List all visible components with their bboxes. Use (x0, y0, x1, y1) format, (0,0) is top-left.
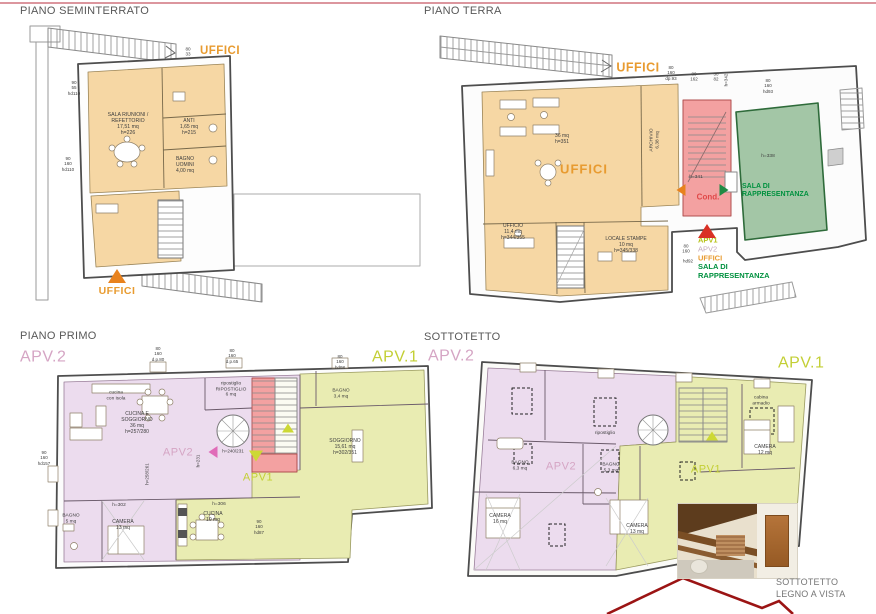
label-uffici-entrance-seminterrato: UFFICI (99, 285, 136, 297)
label-h258: h=258/261 (144, 463, 149, 484)
label-bagno34: BAGNO 3,4 mq (332, 388, 349, 399)
dim-terra-7: hd92 (683, 258, 693, 263)
label-h240: h=240/231 (222, 448, 243, 453)
label-soggiorno: SOGGIORNO 15,61 mq h=302/351 (329, 439, 360, 457)
dim-terra-5: 80 160 hd93 (763, 78, 773, 94)
label-uffici-top-terra: UFFICI (616, 61, 659, 76)
label-apv1-primo: APV.1 (372, 349, 418, 368)
photo-caption: SOTTOTETTO LEGNO A VISTA (776, 576, 845, 600)
dim-sem-2: 90 160 hd110 (62, 156, 74, 172)
label-h231: h=231 (195, 455, 200, 468)
label-camera16: CAMERA 16 mq (489, 514, 510, 526)
dim-primo-5: 90 160 hd87 (254, 519, 264, 535)
label-bagno5: BAGNO 5 mq (62, 513, 79, 524)
label-apv2-primo: APV.2 (20, 349, 66, 368)
label-sala-rappresentanza-plan: SALA DI RAPPRESENTANZA (742, 183, 809, 200)
label-cond: Cond. (697, 192, 720, 201)
label-cucina-soggiorno: CUCINA E SOGGIORNO 36 mq h=257/280 (121, 412, 152, 436)
label-apv2-sottotetto: APV.2 (428, 348, 474, 367)
dim-terra-1: 80 160 dp.93 (665, 65, 676, 81)
arrow-stair-sotto (706, 432, 718, 441)
label-apv1-watermark-sotto: APV1 (691, 464, 721, 477)
label-bagno-uomini: BAGNO UOMINI 4,00 mq (176, 157, 194, 175)
label-archivio: ARCHIVIO 6,38 mq (649, 128, 660, 151)
label-camera13-primo: CAMERA 13 mq (112, 520, 133, 532)
label-ripostiglio-primo: ripostiglio RIPOSTIGLIO 6 mq (216, 382, 247, 399)
label-h302: h=302 (112, 503, 125, 509)
floorplan-page: PIANO SEMINTERRATO PIANO TERRA PIANO PRI… (0, 0, 876, 614)
dim-terra-2: 80 162 (690, 72, 698, 83)
label-uffici-top-seminterrato: UFFICI (200, 45, 240, 59)
label-bagno53: BAGNO 5,3 mq (602, 462, 619, 473)
label-cucina-isola: cucina con isola (107, 390, 126, 401)
arrow-apv2-primo (209, 446, 218, 458)
arrow-entrance-seminterrato (108, 269, 126, 283)
label-h338: h=338 (761, 154, 774, 160)
label-apv2-watermark-sotto: APV2 (546, 461, 576, 474)
photo-brick-wall (716, 535, 745, 556)
arrow-sala-right (720, 184, 729, 196)
arrow-stair-primo (282, 424, 294, 433)
photo-furniture (678, 560, 754, 578)
plan-seminterrato-graphics (30, 26, 420, 302)
label-apv2-watermark-primo: APV2 (163, 447, 193, 460)
label-bagno63: BAGNO 6,3 mq (511, 460, 528, 471)
roof-sketch-line (607, 578, 793, 614)
photo-door (765, 515, 788, 567)
label-apv1-watermark-primo: APV1 (243, 472, 273, 485)
dim-primo-1: 80 160 d.p.80 (152, 346, 165, 362)
legend-sala-rappresentanza: SALA DI RAPPRESENTANZA (698, 263, 770, 281)
label-h341: h=341 (689, 175, 702, 181)
label-camera13-sotto: CAMERA 13 mq (626, 524, 647, 536)
label-open-space: 36 mq h=351 (555, 134, 569, 146)
dim-terra-3: 30 82 (713, 72, 718, 83)
label-cucina10: CUCINA 10 mq (203, 512, 222, 524)
label-cabina-armadio: cabina armadio (752, 395, 769, 406)
dim-terra-6: 80 160 (682, 244, 690, 255)
label-ripostiglio-sotto: ripostiglio (595, 431, 615, 437)
label-apv1-sottotetto: APV.1 (778, 355, 824, 374)
arrow-apv1-primo (249, 451, 263, 462)
label-sala-riunioni: SALA RIUNIONI / REFETTORIO 17,51 mq h=22… (108, 112, 149, 137)
label-uffici-main: UFFICI (560, 161, 608, 176)
arrow-entrance-terra (698, 224, 716, 238)
dim-primo-3: 80 160 hd98 (335, 354, 345, 370)
dim-sem-3: 80 33 (185, 47, 190, 58)
label-ufficio: UFFICIO 11,4 mq h=344/355 (501, 224, 525, 242)
label-h306: h=306 (212, 502, 225, 508)
plan-terra-graphics (440, 36, 866, 313)
dim-sem-1: 90 55 hd110 (68, 80, 80, 96)
label-locale-stampe: LOCALE STAMPE 10 mq h=345/338 (605, 237, 646, 255)
photo-chair (690, 559, 708, 574)
arrow-cond-left (677, 184, 686, 196)
dim-primo-4: 90 160 hd157 (38, 450, 51, 466)
dim-primo-2: 80 160 d.p.65 (226, 348, 239, 364)
label-camera12: CAMERA 12 mq (754, 445, 775, 457)
sottotetto-photo (678, 504, 797, 578)
label-anti: ANTI 1,65 mq h=215 (180, 119, 198, 137)
dim-terra-4: h=342 (723, 74, 728, 87)
